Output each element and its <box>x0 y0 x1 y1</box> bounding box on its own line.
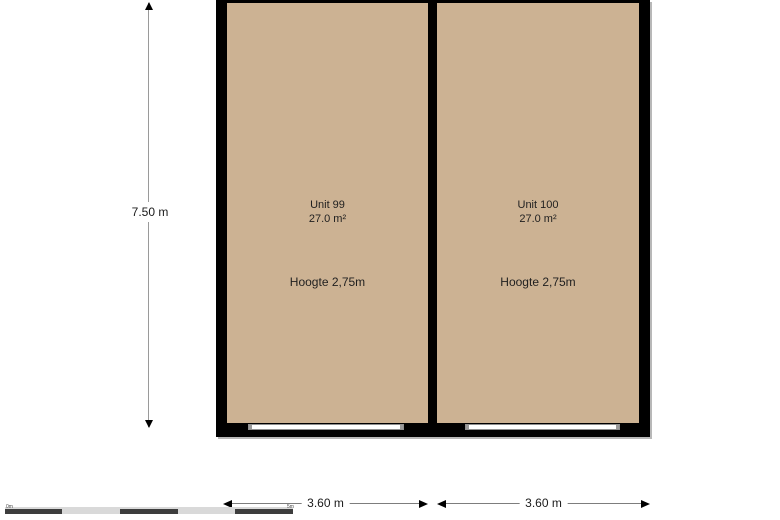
arrow-up-icon <box>145 2 153 10</box>
unit-100-width-label: 3.60 m <box>519 497 568 510</box>
building-outline: Unit 99 27.0 m² Hoogte 2,75m Unit 100 27… <box>216 0 650 437</box>
arrow-down-icon <box>145 420 153 428</box>
scale-start-label: 0m <box>6 505 13 509</box>
unit-99-height-label: Hoogte 2,75m <box>227 275 428 289</box>
unit-100-width-dimension: 3.60 m <box>437 497 650 510</box>
unit-99-name: Unit 99 <box>227 198 428 212</box>
unit-99-area: 27.0 m² <box>227 212 428 226</box>
unit-100-height-label: Hoogte 2,75m <box>437 275 639 289</box>
unit-100-door-symbol <box>465 424 620 430</box>
scale-segment <box>5 509 62 514</box>
door-cap <box>466 425 469 429</box>
door-cap <box>249 425 252 429</box>
unit-100-area: 27.0 m² <box>437 212 639 226</box>
arrow-right-icon <box>641 500 650 508</box>
door-cap <box>616 425 619 429</box>
unit-99-door-symbol <box>248 424 404 430</box>
scale-end-label: 5m <box>287 505 294 509</box>
door-cap <box>400 425 403 429</box>
unit-100-label-block: Unit 100 27.0 m² <box>437 198 639 226</box>
unit-99-width-label: 3.60 m <box>301 497 350 510</box>
unit-99-label-block: Unit 99 27.0 m² <box>227 198 428 226</box>
unit-100-name: Unit 100 <box>437 198 639 212</box>
scale-segment <box>120 509 178 514</box>
arrow-right-icon <box>419 500 428 508</box>
height-dimension-label: 7.50 m <box>124 202 176 222</box>
arrow-left-icon <box>437 500 446 508</box>
unit-99-room: Unit 99 27.0 m² Hoogte 2,75m <box>227 3 428 423</box>
unit-100-room: Unit 100 27.0 m² Hoogte 2,75m <box>437 3 639 423</box>
scale-bar: 0m 5m <box>5 507 293 514</box>
scale-segment <box>235 509 293 514</box>
